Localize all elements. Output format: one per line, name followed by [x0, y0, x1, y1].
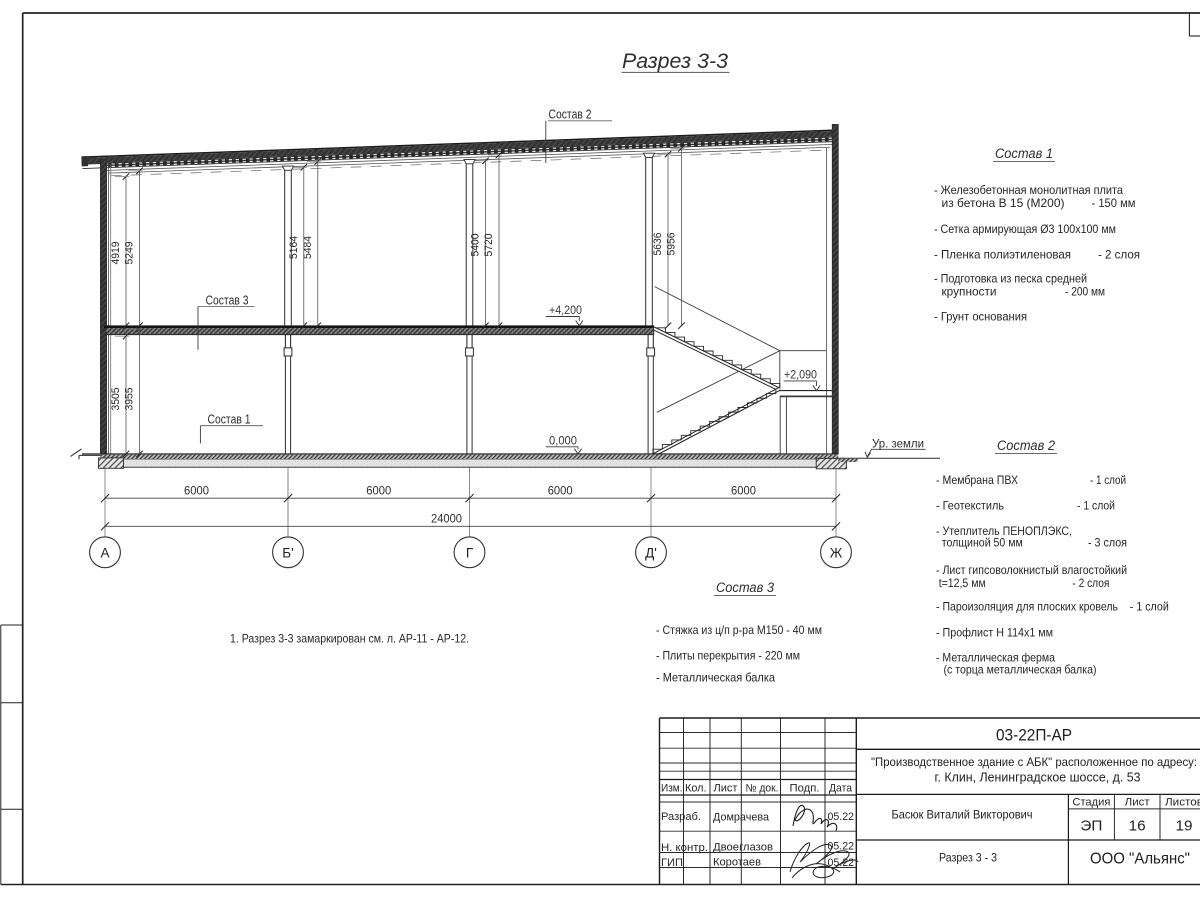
svg-text:Ж: Ж — [830, 545, 843, 560]
svg-text:5720: 5720 — [483, 234, 495, 257]
svg-text:Басюк Виталий Викторович: Басюк Виталий Викторович — [892, 808, 1033, 822]
svg-text:5956: 5956 — [666, 233, 678, 256]
svg-text:6000: 6000 — [184, 486, 209, 498]
svg-text:Состав 3: Состав 3 — [716, 580, 774, 595]
svg-text:Стадия: Стадия — [1072, 797, 1110, 809]
svg-text:- 200 мм: - 200 мм — [1065, 285, 1105, 299]
svg-text:0,000: 0,000 — [549, 434, 577, 448]
svg-text:Состав 1: Состав 1 — [208, 413, 251, 427]
svg-text:6000: 6000 — [731, 486, 756, 498]
svg-text:- Металлическая балка: - Металлическая балка — [656, 671, 775, 685]
svg-text:Состав 1: Состав 1 — [995, 146, 1053, 161]
svg-text:ЭП: ЭП — [1080, 818, 1102, 835]
svg-text:- Профлист Н 114х1 мм: - Профлист Н 114х1 мм — [936, 625, 1053, 639]
svg-text:ГИП: ГИП — [661, 857, 683, 869]
svg-text:Д': Д' — [645, 545, 657, 560]
svg-text:Состав 2: Состав 2 — [997, 438, 1055, 453]
svg-text:19: 19 — [1176, 818, 1193, 835]
svg-text:Листов: Листов — [1165, 797, 1200, 809]
svg-text:Г: Г — [466, 545, 474, 560]
svg-text:1. Разрез 3-3 замаркирован см.: 1. Разрез 3-3 замаркирован см. л. АР-11 … — [230, 632, 469, 646]
svg-text:Подп.: Подп. — [790, 783, 820, 795]
svg-text:5249: 5249 — [124, 242, 136, 265]
svg-text:из бетона В 15 (М200): из бетона В 15 (М200) — [942, 196, 1065, 210]
svg-text:№ док.: № док. — [746, 783, 779, 795]
svg-text:(с торца металлическая балка): (с торца металлическая балка) — [944, 662, 1097, 676]
svg-text:Лист: Лист — [1125, 797, 1150, 809]
svg-text:- Грунт основания: - Грунт основания — [934, 310, 1027, 324]
svg-text:Состав 2: Состав 2 — [549, 108, 592, 122]
svg-text:t=12,5 мм: t=12,5 мм — [939, 576, 986, 590]
svg-text:ООО "Альянс": ООО "Альянс" — [1090, 851, 1190, 868]
svg-text:Ур. земли: Ур. земли — [872, 436, 924, 450]
svg-text:03-22П-АР: 03-22П-АР — [996, 727, 1072, 745]
svg-text:- Сетка армирующая Ø3 100х100: - Сетка армирующая Ø3 100х100 мм — [934, 222, 1116, 236]
svg-text:5400: 5400 — [470, 234, 482, 257]
svg-text:- Геотекстиль: - Геотекстиль — [936, 499, 1004, 513]
svg-text:- Подготовка из песка средней: - Подготовка из песка средней — [934, 272, 1087, 286]
svg-text:+4,200: +4,200 — [549, 303, 582, 317]
svg-text:- 1 слой: - 1 слой — [1077, 499, 1115, 513]
svg-text:24000: 24000 — [431, 514, 462, 526]
svg-text:Коротаев: Коротаев — [713, 857, 761, 869]
svg-text:6000: 6000 — [548, 486, 573, 498]
svg-text:- Мембрана ПВХ: - Мембрана ПВХ — [936, 473, 1018, 487]
svg-text:- 3 слоя: - 3 слоя — [1088, 536, 1127, 550]
svg-text:Разрез 3 - 3: Разрез 3 - 3 — [939, 851, 997, 865]
svg-text:4919: 4919 — [110, 242, 122, 265]
svg-text:- Пленка полиэтиленовая: - Пленка полиэтиленовая — [934, 248, 1071, 262]
svg-text:г. Клин, Ленинградское шоссе,: г. Клин, Ленинградское шоссе, д. 53 — [935, 771, 1141, 785]
svg-text:крупности: крупности — [942, 285, 997, 299]
svg-text:6000: 6000 — [366, 486, 391, 498]
svg-text:3955: 3955 — [124, 388, 136, 411]
svg-text:Домрачева: Домрачева — [713, 812, 770, 824]
svg-text:Двоеглазов: Двоеглазов — [713, 842, 773, 854]
svg-text:- 1 слой: - 1 слой — [1090, 473, 1126, 487]
svg-text:- 2 слоя: - 2 слоя — [1072, 576, 1109, 590]
svg-text:А: А — [100, 545, 109, 560]
svg-text:толщиной 50 мм: толщиной 50 мм — [942, 536, 1023, 550]
svg-text:16: 16 — [1129, 818, 1146, 835]
svg-text:Кол.: Кол. — [685, 783, 707, 795]
svg-text:Разраб.: Разраб. — [661, 811, 701, 823]
svg-text:Лист: Лист — [714, 783, 738, 795]
svg-text:5164: 5164 — [288, 236, 300, 259]
svg-text:- 2 слоя: - 2 слоя — [1098, 248, 1140, 262]
svg-text:- 150 мм: - 150 мм — [1092, 196, 1136, 210]
svg-text:3505: 3505 — [110, 388, 122, 411]
svg-text:"Производственное здание с АБК: "Производственное здание с АБК" располож… — [871, 755, 1197, 769]
svg-text:- Стяжка из ц/п р-ра М150 - 40: - Стяжка из ц/п р-ра М150 - 40 мм — [656, 623, 822, 637]
svg-text:Дата: Дата — [829, 783, 852, 795]
svg-text:Н. контр.: Н. контр. — [661, 842, 708, 854]
svg-text:- 1 слой: - 1 слой — [1130, 600, 1169, 614]
svg-text:Разрез 3-3: Разрез 3-3 — [622, 49, 728, 73]
svg-text:+2,090: +2,090 — [784, 368, 817, 382]
svg-text:5484: 5484 — [302, 236, 314, 259]
svg-text:- Железобетонная монолитная п: - Железобетонная монолитная плита — [934, 183, 1123, 197]
svg-text:Состав 3: Состав 3 — [206, 294, 249, 308]
svg-text:- Пароизоляция для плоских кро: - Пароизоляция для плоских кровель — [936, 600, 1118, 614]
svg-text:Б': Б' — [282, 545, 293, 560]
svg-text:5636: 5636 — [652, 233, 664, 256]
svg-text:- Плиты перекрытия - 220 мм: - Плиты перекрытия - 220 мм — [656, 649, 800, 663]
svg-text:05.22: 05.22 — [828, 811, 855, 823]
svg-text:Изм.: Изм. — [661, 783, 683, 795]
svg-text:- Лист гипсоволокнистый влагос: - Лист гипсоволокнистый влагостойкий — [936, 563, 1127, 577]
